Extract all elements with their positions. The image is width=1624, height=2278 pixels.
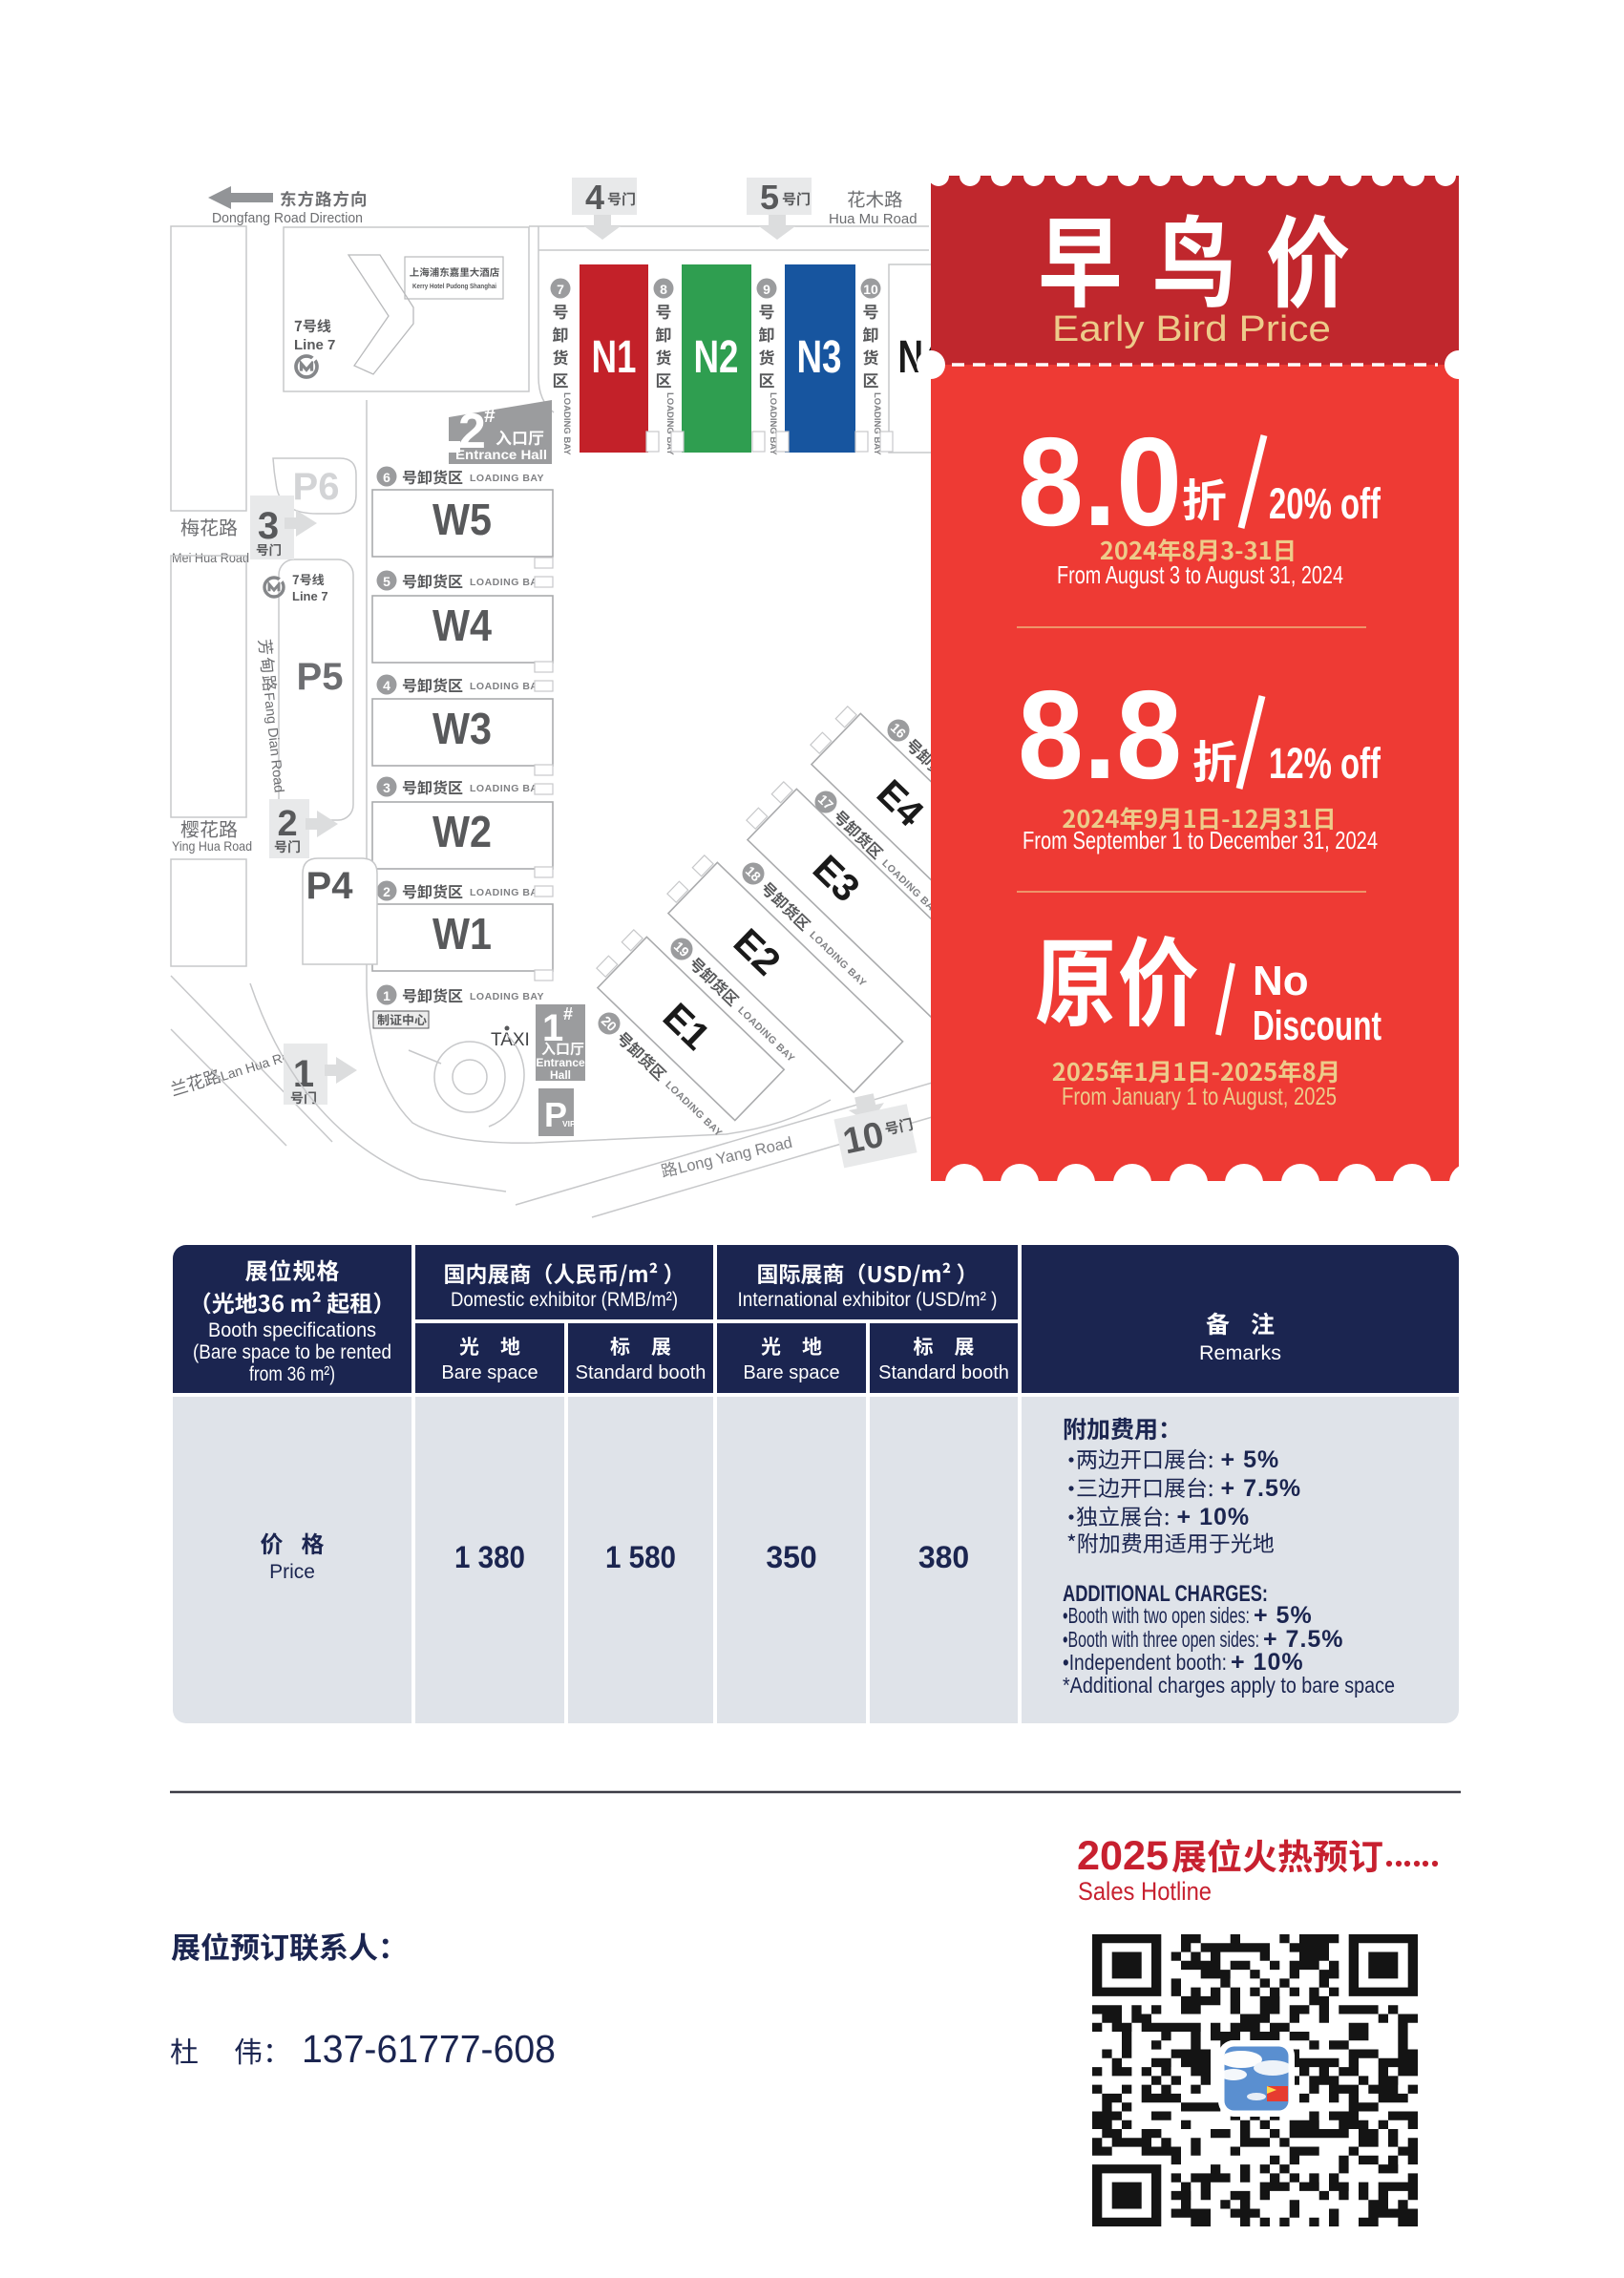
svg-text:5: 5: [383, 574, 390, 589]
svg-text:+ 7.5%: + 7.5%: [1221, 1475, 1302, 1502]
svg-text:#: #: [563, 1004, 573, 1023]
svg-text:2: 2: [277, 804, 297, 844]
svg-text:350: 350: [766, 1540, 816, 1574]
svg-text:Hall: Hall: [550, 1068, 571, 1082]
svg-text:(Bare space to be rented: (Bare space to be rented: [193, 1340, 391, 1363]
svg-text:10: 10: [839, 1115, 887, 1163]
svg-text:LOADING BAY: LOADING BAY: [561, 392, 572, 455]
svg-text:Remarks: Remarks: [1199, 1341, 1281, 1364]
svg-text:•Independent booth:: •Independent booth:: [1063, 1650, 1227, 1675]
svg-text:+ 10%: + 10%: [1231, 1649, 1304, 1676]
svg-text:LOADING BAY: LOADING BAY: [470, 681, 544, 692]
svg-text:•Booth with two open sides:: •Booth with two open sides:: [1063, 1603, 1250, 1628]
svg-text:W2: W2: [432, 807, 492, 856]
svg-text:5: 5: [760, 178, 779, 217]
svg-text:Entrance: Entrance: [536, 1056, 585, 1069]
svg-text:from 36 m²): from 36 m²): [249, 1362, 335, 1385]
svg-text:Sales Hotline: Sales Hotline: [1078, 1877, 1212, 1906]
svg-text:137-61777-608: 137-61777-608: [302, 2027, 556, 2071]
svg-text:From August 3 to August 31, 20: From August 3 to August 31, 2024: [1057, 560, 1343, 589]
svg-text:TAXI: TAXI: [491, 1030, 530, 1050]
svg-text:6: 6: [383, 470, 390, 485]
svg-text:Kerry Hotel Pudong Shanghai: Kerry Hotel Pudong Shanghai: [412, 282, 496, 290]
svg-text:W4: W4: [432, 601, 492, 650]
svg-text:P6: P6: [293, 466, 340, 508]
svg-text:LOADING BAY: LOADING BAY: [470, 887, 544, 898]
svg-text:From January 1 to August, 2025: From January 1 to August, 2025: [1062, 1082, 1337, 1110]
svg-text:Line 7: Line 7: [294, 337, 335, 353]
svg-text:1: 1: [542, 1007, 563, 1049]
svg-text:2025: 2025: [1077, 1833, 1169, 1879]
svg-text:International exhibitor (USD/m: International exhibitor (USD/m² ): [738, 1288, 998, 1311]
svg-text:Early Bird Price: Early Bird Price: [1052, 309, 1331, 349]
svg-text:20% off: 20% off: [1269, 479, 1381, 528]
svg-text:W5: W5: [432, 495, 492, 544]
svg-text:LOADING BAY: LOADING BAY: [470, 577, 544, 588]
svg-text:1 380: 1 380: [454, 1540, 525, 1574]
svg-text:Price: Price: [269, 1561, 315, 1583]
svg-text:N1: N1: [592, 332, 637, 383]
svg-text:Ying Hua Road: Ying Hua Road: [172, 838, 252, 854]
svg-text:Line 7: Line 7: [292, 589, 328, 603]
svg-text:1: 1: [383, 988, 390, 1003]
svg-text:#: #: [484, 405, 496, 427]
svg-text:LOADING BAY: LOADING BAY: [470, 473, 544, 484]
svg-text:Mei Hua Road: Mei Hua Road: [172, 550, 249, 565]
svg-text:4: 4: [383, 678, 390, 693]
svg-text:*Additional charges apply to b: *Additional charges apply to bare space: [1063, 1673, 1395, 1698]
svg-text:2: 2: [383, 884, 390, 899]
svg-text:1 580: 1 580: [605, 1540, 676, 1574]
svg-text:W1: W1: [432, 909, 492, 959]
svg-text:7: 7: [557, 282, 564, 297]
svg-text:Discount: Discount: [1253, 1002, 1381, 1049]
svg-text:12% off: 12% off: [1269, 739, 1381, 788]
svg-text:Bare space: Bare space: [441, 1362, 538, 1383]
svg-text:P5: P5: [297, 656, 344, 698]
svg-text:Dongfang Road Direction: Dongfang Road Direction: [212, 210, 363, 226]
svg-text:W3: W3: [432, 704, 492, 753]
svg-text:9: 9: [763, 282, 770, 297]
svg-text:Booth specifications: Booth specifications: [208, 1318, 376, 1341]
svg-text:8.8: 8.8: [1018, 664, 1182, 805]
svg-text:Entrance Hall: Entrance Hall: [455, 448, 547, 462]
svg-text:+ 5%: + 5%: [1221, 1446, 1280, 1473]
svg-text:Hua Mu Road: Hua Mu Road: [829, 211, 917, 227]
svg-text:8.0: 8.0: [1018, 411, 1182, 552]
svg-text:3: 3: [258, 505, 279, 547]
svg-text:Bare space: Bare space: [743, 1362, 839, 1383]
svg-text:+ 10%: + 10%: [1177, 1504, 1251, 1530]
svg-text:No: No: [1253, 958, 1309, 1004]
svg-text:Standard booth: Standard booth: [878, 1362, 1009, 1383]
svg-text:10: 10: [863, 282, 878, 297]
svg-text:Domestic exhibitor (RMB/m²): Domestic exhibitor (RMB/m²): [451, 1288, 678, 1311]
svg-text:+ 5%: + 5%: [1254, 1602, 1313, 1629]
svg-text:VIP: VIP: [562, 1119, 576, 1128]
svg-text:Standard booth: Standard booth: [576, 1362, 707, 1383]
svg-text:380: 380: [918, 1540, 969, 1574]
svg-text:N2: N2: [694, 332, 739, 383]
svg-text:8: 8: [660, 282, 667, 297]
svg-text:N3: N3: [797, 332, 842, 383]
svg-text:3: 3: [383, 780, 390, 795]
svg-text:LOADING BAY: LOADING BAY: [470, 991, 544, 1002]
svg-text:From September 1 to December 3: From September 1 to December 31, 2024: [1023, 826, 1378, 854]
svg-text:4: 4: [585, 178, 604, 217]
svg-text:P4: P4: [306, 865, 354, 907]
svg-text:LOADING BAY: LOADING BAY: [470, 783, 544, 794]
